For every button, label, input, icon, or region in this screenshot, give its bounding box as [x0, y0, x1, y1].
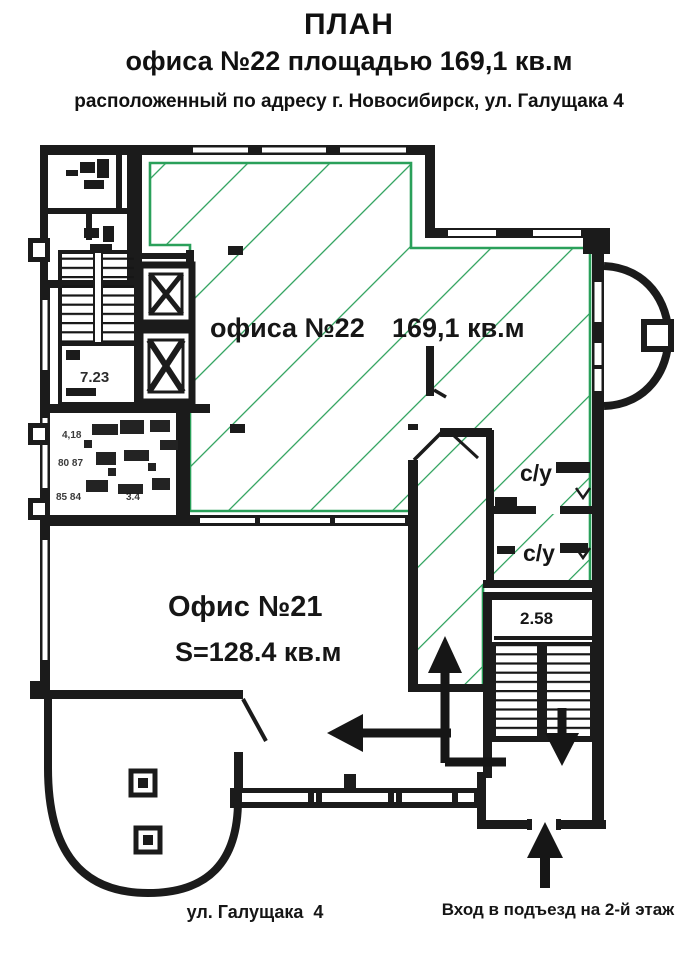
arrow-left-icon: [327, 714, 451, 752]
office22-name-label: офиса №22: [210, 313, 365, 343]
floor-plan-drawing: офиса №22 169,1 кв.м с/у с/у Офис №21 S=…: [0, 0, 698, 960]
scan-artifact: 85 84: [56, 492, 81, 503]
entrance-arrow-up-icon: [527, 822, 563, 888]
scan-artifact: 3.4: [126, 492, 140, 503]
office21-door-leaf: [243, 699, 266, 741]
scan-artifact: 80 87: [58, 458, 83, 469]
office22-area-label: 169,1 кв.м: [392, 313, 525, 343]
entrance-staircase: [494, 644, 592, 740]
wc-top-label: с/у: [520, 460, 552, 486]
elevator-shafts: [140, 265, 192, 402]
scan-artifact: 4,18: [62, 430, 82, 441]
office21-name-label: Офис №21: [168, 591, 323, 623]
floor-plan-page: ПЛАН офиса №22 площадью 169,1 кв.м распо…: [0, 0, 698, 960]
core-landing-dim: 7.23: [80, 369, 109, 386]
wc-bottom-label: с/у: [523, 540, 555, 566]
elevator-icon: [140, 330, 192, 402]
bay-niche: [644, 322, 671, 349]
entrance-label: Вход в подъезд на 2-й этаж: [442, 900, 675, 919]
bay-columns: [131, 771, 160, 852]
entrance-stair-dim: 2.58: [520, 609, 553, 628]
elevator-icon: [140, 265, 192, 323]
office-furniture: [84, 420, 178, 494]
street-label: ул. Галущака 4: [187, 902, 324, 922]
office21-area-label: S=128.4 кв.м: [175, 637, 341, 667]
